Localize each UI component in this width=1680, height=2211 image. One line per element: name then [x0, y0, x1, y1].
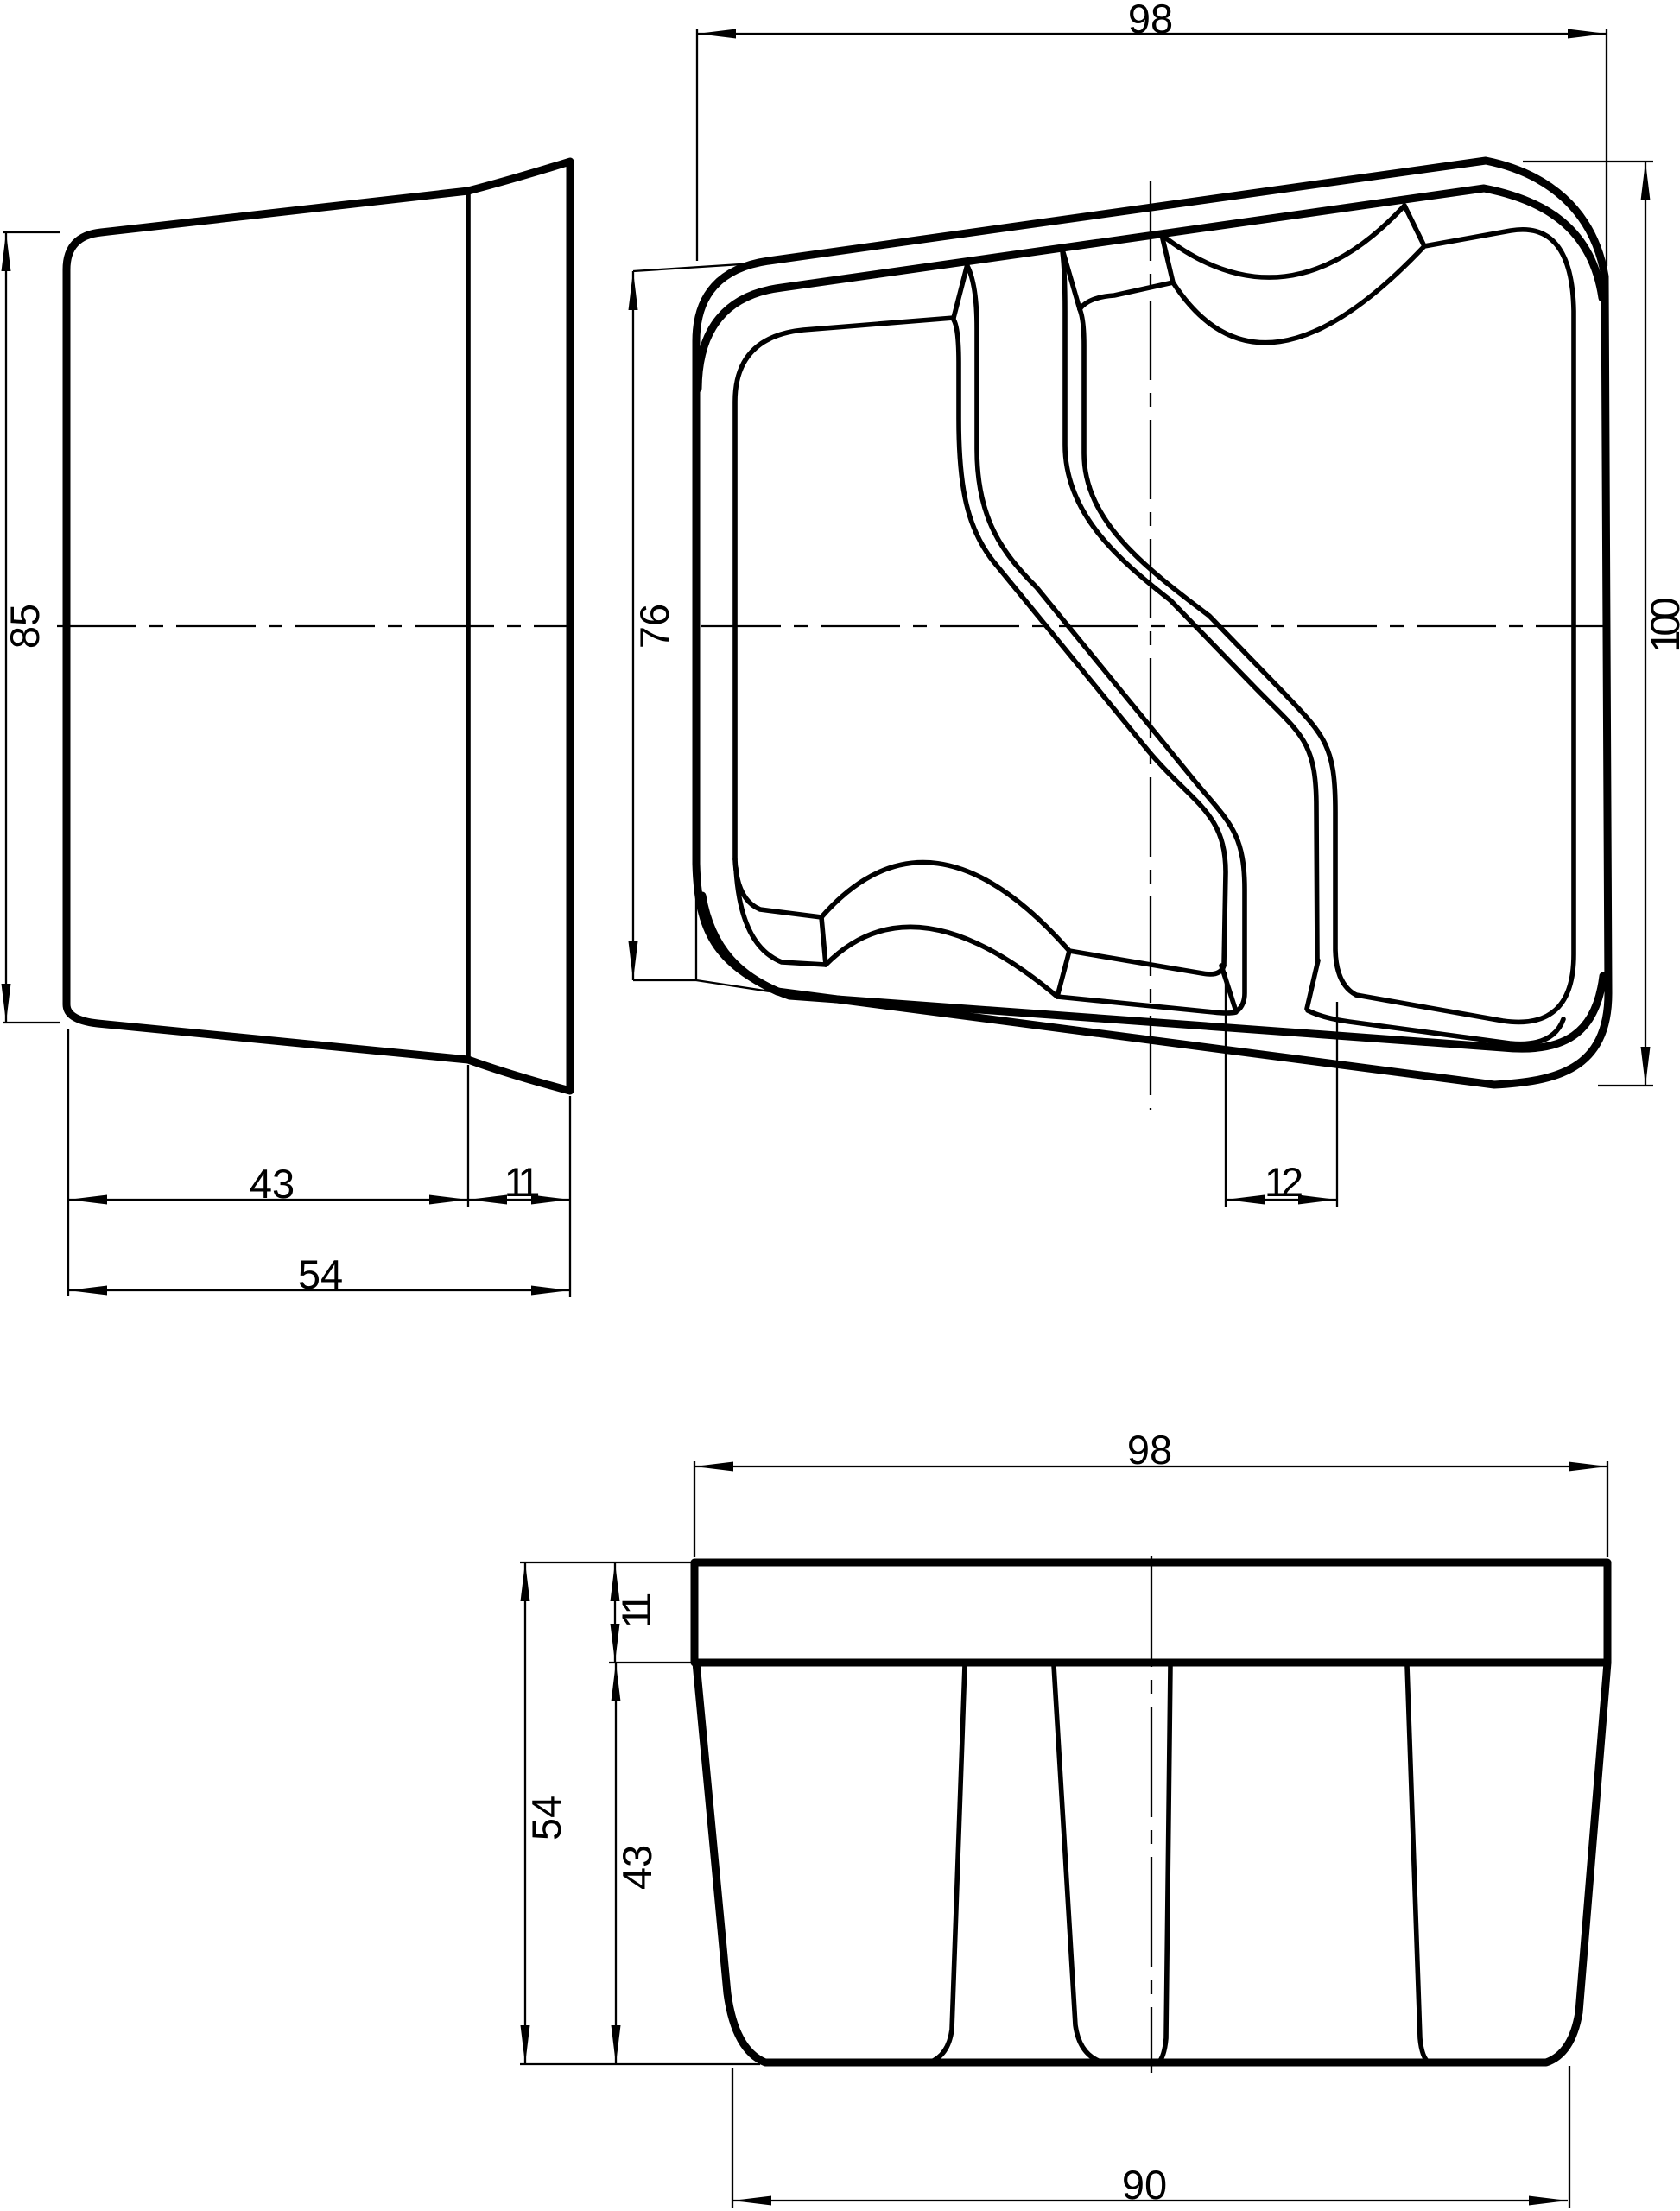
svg-text:54: 54 — [298, 1251, 343, 1297]
svg-text:98: 98 — [1128, 0, 1173, 41]
svg-text:85: 85 — [2, 604, 48, 649]
svg-text:12: 12 — [1265, 1159, 1302, 1205]
svg-text:43: 43 — [250, 1161, 295, 1207]
svg-text:90: 90 — [1122, 2162, 1167, 2208]
svg-text:100: 100 — [1642, 598, 1680, 652]
svg-text:98: 98 — [1127, 1427, 1172, 1473]
svg-text:54: 54 — [523, 1796, 569, 1840]
svg-text:11: 11 — [504, 1159, 539, 1205]
svg-text:76: 76 — [631, 604, 677, 649]
svg-text:43: 43 — [614, 1845, 660, 1890]
svg-text:11: 11 — [613, 1594, 659, 1629]
